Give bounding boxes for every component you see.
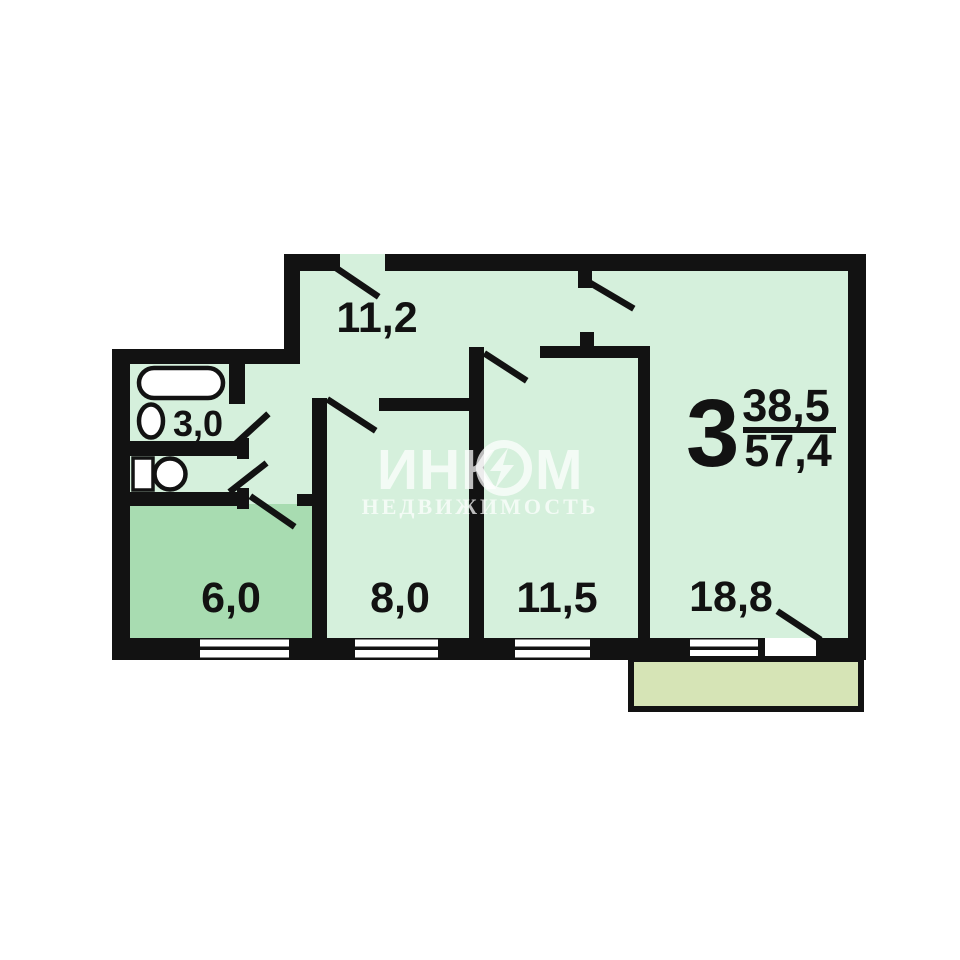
- room-middle-area-label: 11,5: [516, 574, 597, 622]
- bathroom-area-label: 3,0: [173, 403, 223, 444]
- room-small-window-mullion: [355, 647, 438, 651]
- floor-plan-svg: 11,2 3,0 6,0 8,0 11,5 18,8 3 38,5 57,4 И…: [0, 0, 960, 960]
- room-large-window-mullion: [690, 647, 758, 651]
- toilet-bowl: [155, 459, 186, 490]
- total-area-value: 57,4: [744, 425, 832, 476]
- rooms-count: 3: [686, 380, 739, 487]
- wall-top-main: [385, 254, 866, 271]
- room-large-area-label: 18,8: [689, 573, 773, 621]
- room-small-area-label: 8,0: [370, 574, 430, 622]
- wall-kitchen-room-divider: [312, 398, 327, 638]
- wall-right: [848, 254, 866, 660]
- bathtub: [139, 368, 223, 398]
- wall-bathroom-right: [229, 364, 245, 404]
- apartment-summary: 3 38,5 57,4: [686, 380, 836, 487]
- room-middle-window-mullion: [515, 647, 590, 651]
- watermark: ИНК М НЕДВИЖИМОСТЬ: [362, 438, 599, 519]
- sink: [139, 405, 163, 438]
- wall-hallway-left: [284, 254, 300, 364]
- floor-plan-image: 11,2 3,0 6,0 8,0 11,5 18,8 3 38,5 57,4 И…: [0, 0, 960, 960]
- wall-room-small-top: [379, 398, 469, 411]
- watermark-brand-end: М: [535, 438, 582, 502]
- watermark-subtitle: НЕДВИЖИМОСТЬ: [362, 494, 599, 519]
- wall-bathroom-top: [112, 349, 300, 364]
- wall-room-middle-top: [540, 346, 650, 358]
- hallway-area-label: 11,2: [336, 294, 417, 342]
- wall-toilet-bottom: [121, 492, 237, 506]
- balcony-doorway: [765, 638, 816, 658]
- wall-room-middle-top-stub: [580, 332, 594, 348]
- kitchen-area-label: 6,0: [201, 574, 261, 622]
- living-area-value: 38,5: [742, 380, 830, 431]
- wall-toilet-bottom-stub: [237, 488, 249, 509]
- toilet-tank: [133, 458, 153, 490]
- kitchen-window-mullion: [200, 647, 289, 651]
- balcony: [631, 659, 861, 709]
- wall-room-middle-right: [638, 346, 650, 638]
